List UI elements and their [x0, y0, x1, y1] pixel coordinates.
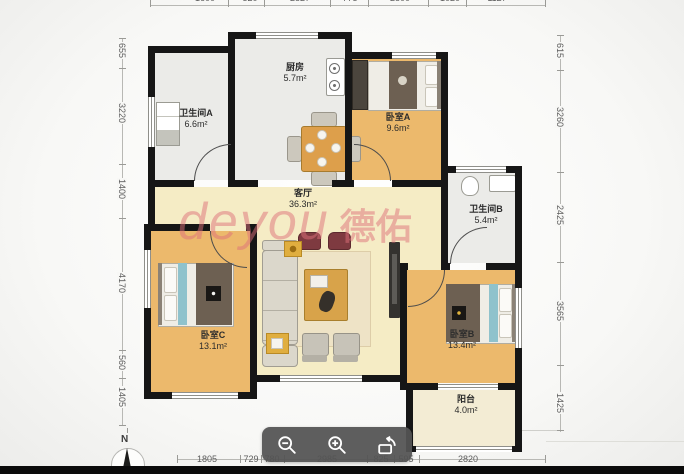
dim-label: 520 [242, 0, 257, 3]
ruler-tick [119, 425, 126, 426]
dim-label: 615 [555, 42, 565, 59]
headboard [158, 263, 162, 325]
ruler-tick [557, 262, 564, 263]
accent-chair [328, 232, 351, 250]
room-area: 36.3m² [261, 199, 345, 210]
window [456, 166, 506, 173]
ruler-tick [119, 68, 126, 69]
room-label: 卧室C 13.1m² [171, 330, 255, 352]
zoom-in-button[interactable] [315, 429, 359, 460]
dim-label: 1600 [195, 0, 215, 3]
window [392, 52, 436, 59]
room-label: 卧室B 13.4m² [420, 329, 504, 351]
window [515, 288, 522, 348]
room-name: 卧室B [420, 329, 504, 340]
dim-label: 2425 [555, 204, 565, 226]
wall [400, 263, 407, 390]
dim-label: 4170 [117, 272, 127, 294]
window [172, 392, 238, 399]
magnifier-minus-icon [276, 434, 298, 456]
plate-icon [305, 143, 315, 153]
wall [515, 166, 522, 393]
room-area: 6.6m² [154, 119, 238, 130]
wall [238, 392, 257, 399]
floorplan-viewer[interactable]: 1600 520 2827 775 2800 1020 1127 655 322… [0, 0, 684, 474]
ruler-tick [119, 164, 126, 165]
plate-icon [317, 157, 327, 167]
room-area: 5.4m² [444, 215, 528, 226]
wall [144, 392, 172, 399]
ruler-tick [119, 218, 126, 219]
ruler-tick [557, 430, 564, 431]
window [280, 375, 362, 382]
room-name: 卫生间B [444, 204, 528, 215]
dim-label: 2800 [390, 0, 410, 3]
ruler-tick [119, 378, 126, 379]
ruler-tick [368, 0, 369, 7]
ruler-tick [557, 172, 564, 173]
dining-chair [287, 136, 302, 162]
sink [489, 175, 516, 192]
extension-line [546, 441, 684, 442]
ruler-tick [557, 365, 564, 366]
dim-label: 1425 [555, 392, 565, 414]
room-label: 阳台 4.0m² [424, 394, 508, 416]
extension-line [522, 430, 562, 431]
tray [310, 275, 328, 288]
ruler-line [560, 35, 561, 432]
dim-label: 1127 [487, 0, 506, 3]
dim-label: 2827 [290, 0, 310, 3]
rotate-frame-icon [376, 434, 398, 456]
wall [444, 263, 450, 270]
ruler-tick [119, 350, 126, 351]
room-area: 13.1m² [171, 341, 255, 352]
ruler-tick [150, 0, 151, 7]
ruler-tick [428, 0, 429, 7]
ruler-tick [330, 0, 331, 7]
room-name: 客厅 [261, 188, 345, 199]
ruler-tick [240, 455, 241, 463]
wardrobe [352, 60, 368, 110]
dim-label: 1805 [197, 454, 217, 464]
dim-label: 3260 [555, 106, 565, 128]
bed-tray [452, 306, 466, 320]
room-label: 卧室A 9.6m² [356, 112, 440, 134]
window [416, 446, 512, 452]
ruler-tick [419, 455, 420, 463]
ottoman [333, 333, 360, 356]
ruler-tick [228, 0, 229, 7]
window [144, 250, 151, 308]
wall [148, 46, 235, 53]
wall [515, 386, 522, 452]
dim-label: 560 [117, 354, 127, 371]
ruler-tick [466, 0, 467, 7]
plate-icon [317, 130, 327, 140]
room-name: 厨房 [253, 62, 337, 73]
room-label: 卫生间A 6.6m² [154, 108, 238, 130]
room-name: 卫生间A [154, 108, 238, 119]
dim-label: 1400 [117, 178, 127, 200]
dim-label: 2820 [458, 454, 478, 464]
wall [362, 375, 407, 382]
magnifier-plus-icon [326, 434, 348, 456]
pillow [499, 288, 512, 312]
room-area: 13.4m² [420, 340, 504, 351]
wall [486, 263, 522, 270]
ruler-tick [557, 35, 564, 36]
viewer-toolbar [262, 427, 412, 462]
room-label: 客厅 36.3m² [261, 188, 345, 210]
bed-tray [206, 286, 221, 301]
wall [392, 180, 448, 187]
ruler-tick [264, 0, 265, 7]
bed-runner [178, 263, 187, 325]
room-area: 4.0m² [424, 405, 508, 416]
wall [250, 224, 257, 399]
room-name: 卧室A [356, 112, 440, 123]
ruler-tick [557, 70, 564, 71]
dim-label: 775 [342, 0, 357, 3]
dim-label: 655 [117, 42, 127, 59]
pillow [164, 267, 177, 293]
side-table [284, 241, 302, 257]
ottoman [302, 333, 329, 356]
compass-tick [127, 428, 128, 433]
room-label: 厨房 5.7m² [253, 62, 337, 84]
dim-label: 1405 [117, 386, 127, 408]
sliding-door [438, 384, 498, 389]
tv-screen [392, 254, 397, 304]
wall [230, 180, 258, 187]
dim-label: 3220 [117, 102, 127, 124]
ottoman-back [302, 355, 327, 362]
ottoman-back [333, 355, 358, 362]
ruler-tick [177, 455, 178, 463]
room-label: 卫生间B 5.4m² [444, 204, 528, 226]
room-area: 5.7m² [253, 73, 337, 84]
room-name: 阳台 [424, 394, 508, 405]
ruler-tick [119, 38, 126, 39]
zoom-out-button[interactable] [265, 429, 309, 460]
dim-label: 729 [243, 454, 258, 464]
wall [332, 180, 354, 187]
lamp [271, 338, 283, 349]
plate-icon [331, 143, 341, 153]
ruler-line [150, 5, 545, 6]
room-area: 9.6m² [356, 123, 440, 134]
toilet [461, 176, 479, 196]
room-name: 卧室C [171, 330, 255, 341]
wall [144, 224, 210, 231]
window [256, 32, 318, 39]
pillow [164, 295, 177, 321]
compass-n-label: N [121, 434, 128, 445]
ruler-tick [545, 0, 546, 7]
rotate-button[interactable] [365, 429, 409, 460]
dim-label: 3565 [555, 300, 565, 322]
bottom-bar [0, 466, 684, 474]
dining-chair [311, 112, 337, 127]
dim-label: 1020 [440, 0, 460, 3]
sofa [262, 250, 298, 345]
ruler-tick [545, 455, 546, 463]
